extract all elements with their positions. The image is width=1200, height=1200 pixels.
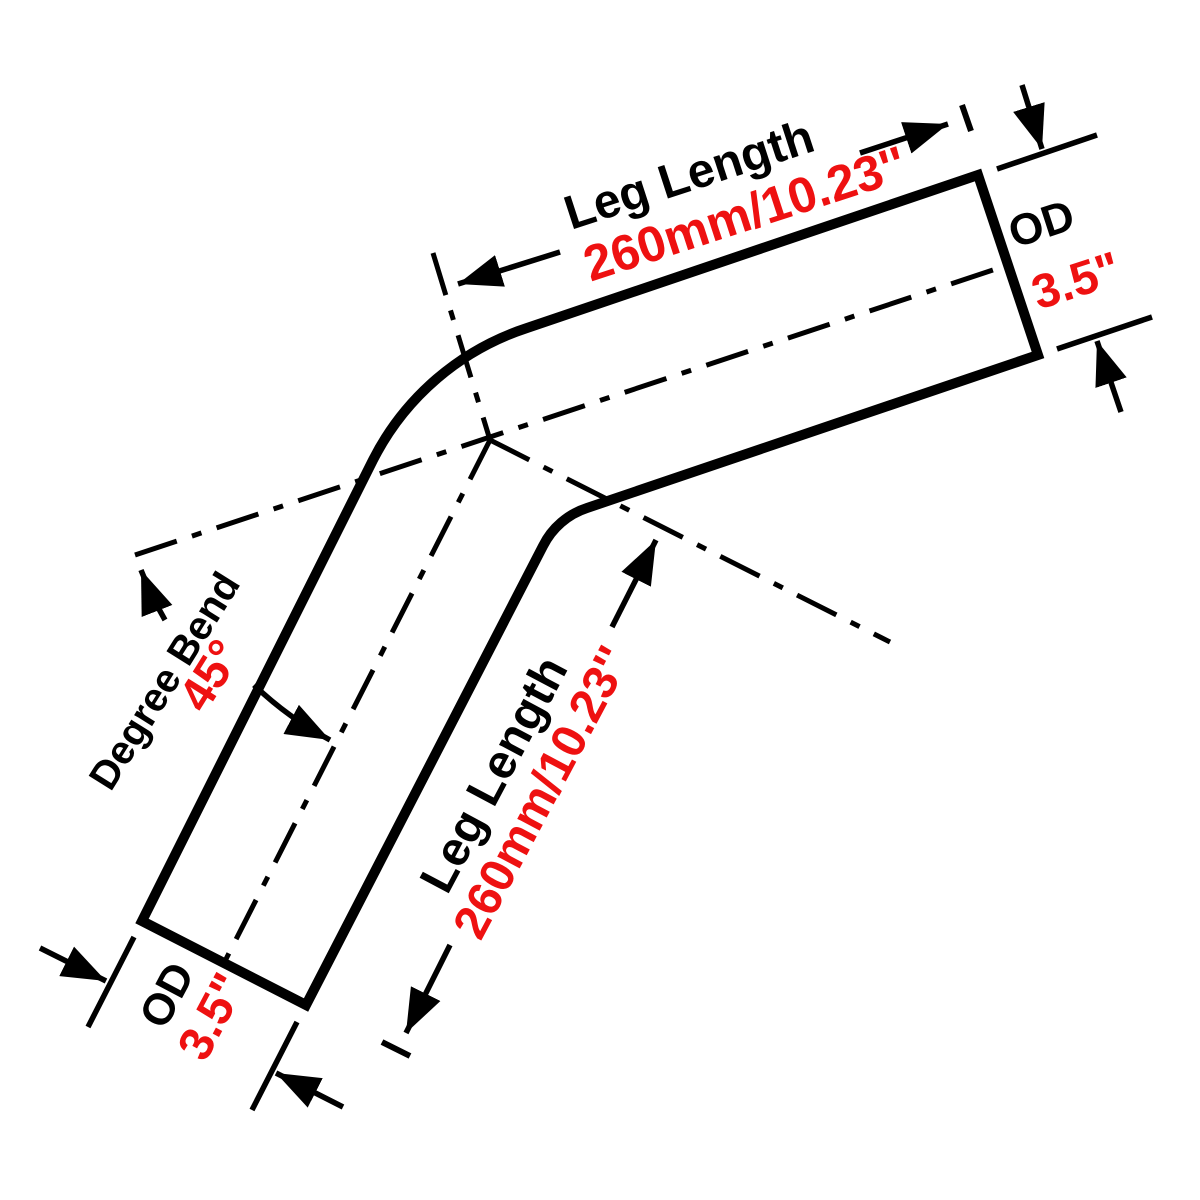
pipe-dimension-diagram: Leg Length 260mm/10.23'' OD 3.5" Degree … <box>0 0 1200 1200</box>
diagram-page: Leg Length 260mm/10.23'' OD 3.5" Degree … <box>0 0 1200 1200</box>
